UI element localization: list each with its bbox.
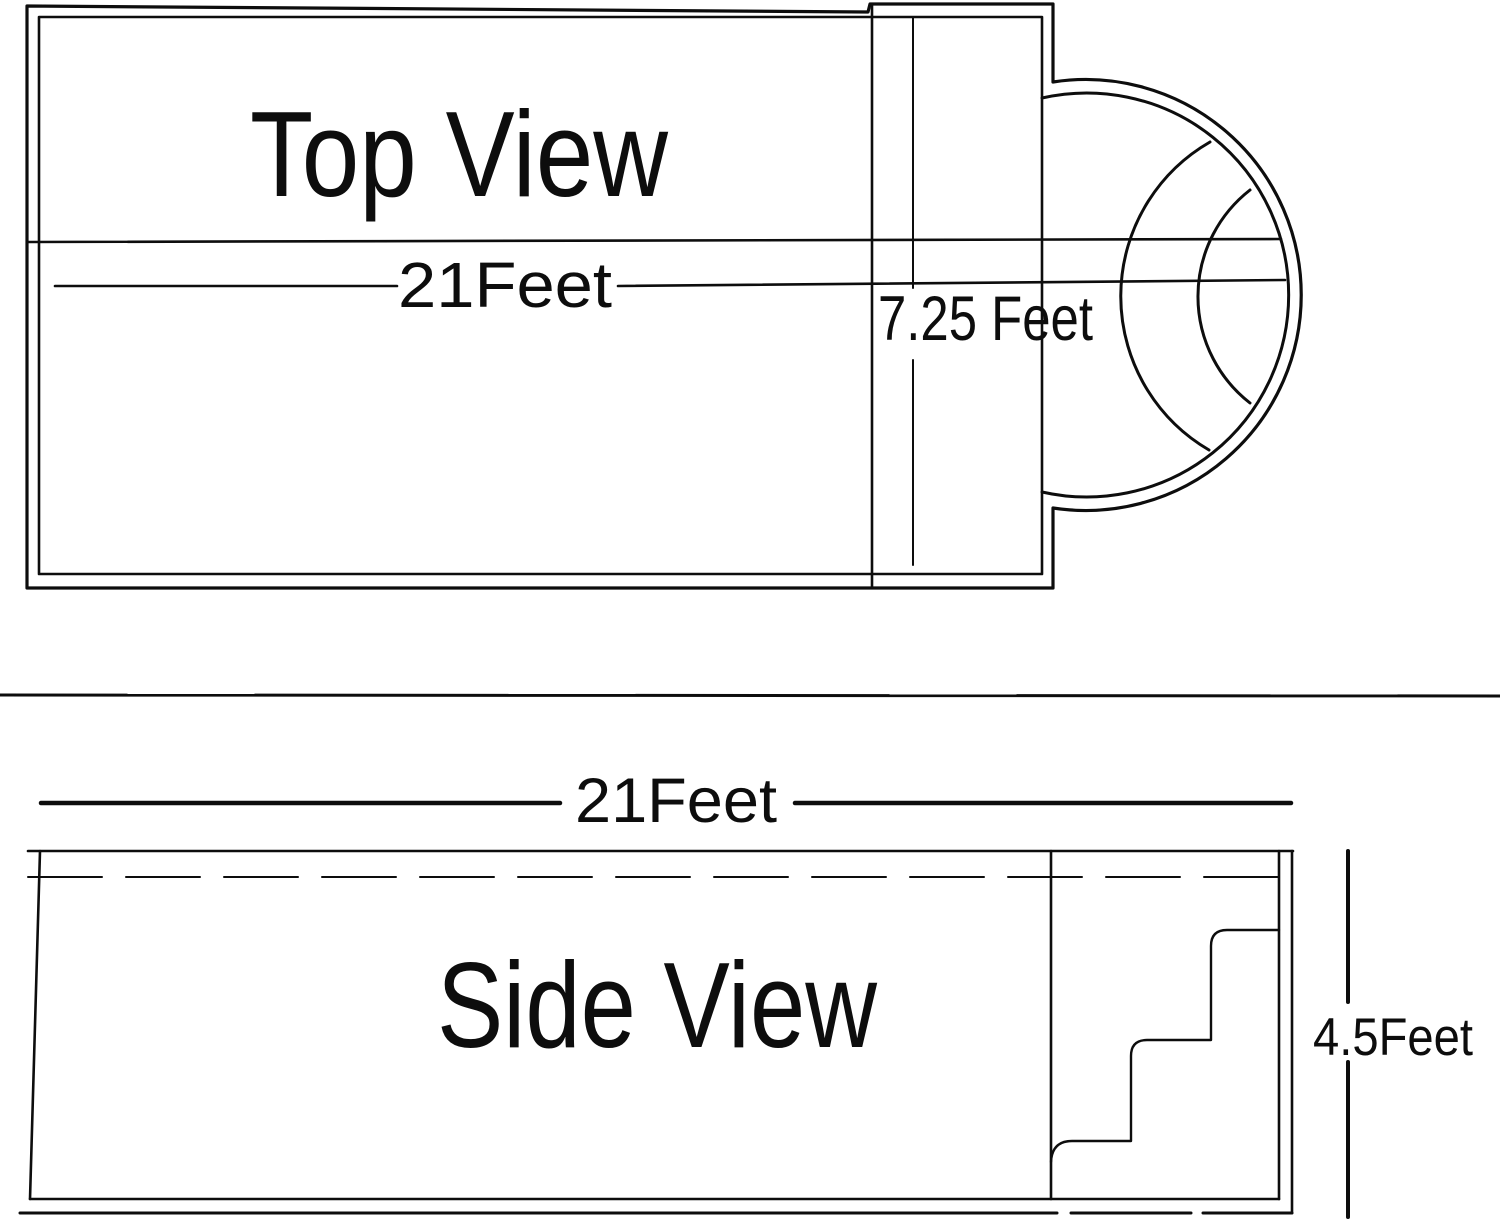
top-view-title: Top View — [250, 86, 669, 222]
stairs-profile — [1051, 930, 1279, 1162]
pool-upper-reference-line — [28, 239, 1281, 242]
side-view-depth-label: 4.5Feet — [1313, 1008, 1473, 1067]
top-view-step-width-label: 7.25 Feet — [878, 284, 1093, 354]
section-divider-line — [0, 695, 1500, 696]
side-view-left-wall — [30, 851, 40, 1199]
side-view-length-label: 21Feet — [575, 766, 778, 836]
pool-diagram: Top View 21Feet 7.25 Feet — [0, 0, 1500, 1228]
top-view-length-label: 21Feet — [398, 249, 612, 321]
side-view-title: Side View — [437, 937, 878, 1073]
top-view-diagram: Top View 21Feet 7.25 Feet — [27, 4, 1301, 588]
pool-diagram-canvas: Top View 21Feet 7.25 Feet — [0, 0, 1500, 1228]
side-view-diagram: Side View 21Feet 4.5Feet — [20, 766, 1473, 1217]
round-end-step-arc-inner — [1198, 190, 1250, 403]
